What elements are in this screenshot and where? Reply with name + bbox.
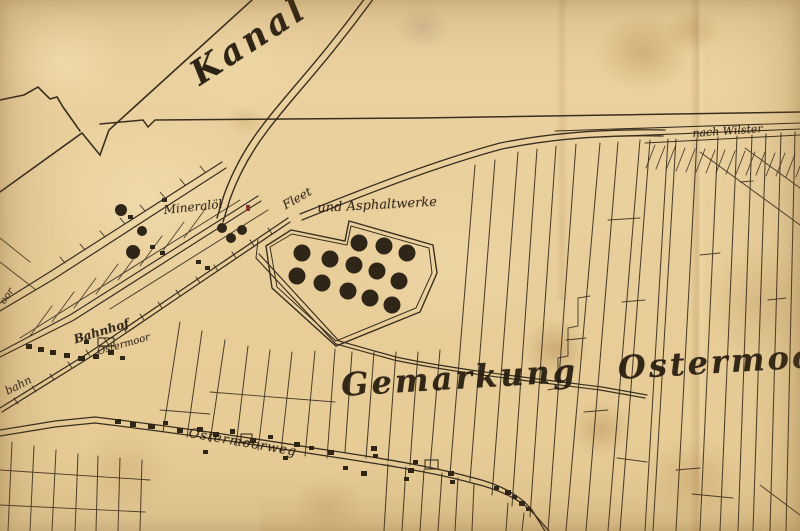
building (177, 428, 183, 433)
building (526, 507, 531, 511)
oil-tank (399, 245, 416, 262)
building (328, 450, 334, 455)
building (50, 350, 56, 355)
building (448, 471, 454, 476)
building (408, 468, 414, 473)
building (64, 353, 70, 358)
oil-tank (217, 223, 227, 233)
parcel-blocks-northwest (0, 200, 268, 338)
building (343, 466, 348, 470)
building (162, 198, 167, 202)
field-strip-hatching (646, 145, 800, 177)
building (196, 260, 201, 264)
building (494, 486, 499, 490)
building (78, 356, 85, 361)
building (373, 454, 378, 458)
oil-tank (322, 251, 339, 268)
building (268, 435, 273, 439)
building (505, 490, 511, 495)
building (519, 501, 525, 506)
building (148, 424, 155, 429)
building (404, 477, 409, 481)
oil-tank (226, 233, 236, 243)
red-mark (246, 205, 250, 211)
building (450, 480, 455, 484)
oil-tank (294, 245, 311, 262)
map-scan: Kanal nach Wilster Mineralöl Fleet und A… (0, 0, 800, 531)
field-strips-southwest (0, 442, 150, 531)
building (163, 421, 168, 425)
building (203, 450, 208, 454)
building (309, 446, 314, 450)
building (413, 460, 418, 464)
oil-tank (369, 263, 386, 280)
railway-line (0, 218, 290, 412)
oil-tanks-large (289, 235, 416, 314)
oil-tank (391, 273, 408, 290)
oil-tank (346, 257, 363, 274)
building (160, 251, 165, 255)
oil-tank (384, 297, 401, 314)
oil-tank (289, 268, 306, 285)
building (115, 419, 121, 424)
oil-tank (137, 226, 147, 236)
oil-tank (362, 290, 379, 307)
building (150, 245, 155, 249)
building (205, 266, 210, 270)
oil-tank (314, 275, 331, 292)
building (128, 215, 133, 219)
building (120, 356, 125, 360)
building (26, 344, 32, 349)
map-linework (0, 0, 800, 531)
red-mark-rect (246, 205, 250, 211)
building (512, 495, 517, 499)
oil-tank (237, 225, 247, 235)
oil-tank (351, 235, 368, 252)
oil-tank (115, 204, 127, 216)
canal-bank-zigzag (0, 0, 252, 192)
building (361, 471, 367, 476)
oil-tank (340, 283, 357, 300)
road-ostermoorweg (0, 417, 549, 531)
building (371, 446, 377, 451)
oil-tank (126, 245, 140, 259)
building (38, 347, 44, 352)
oil-tank (376, 238, 393, 255)
building (130, 422, 136, 427)
